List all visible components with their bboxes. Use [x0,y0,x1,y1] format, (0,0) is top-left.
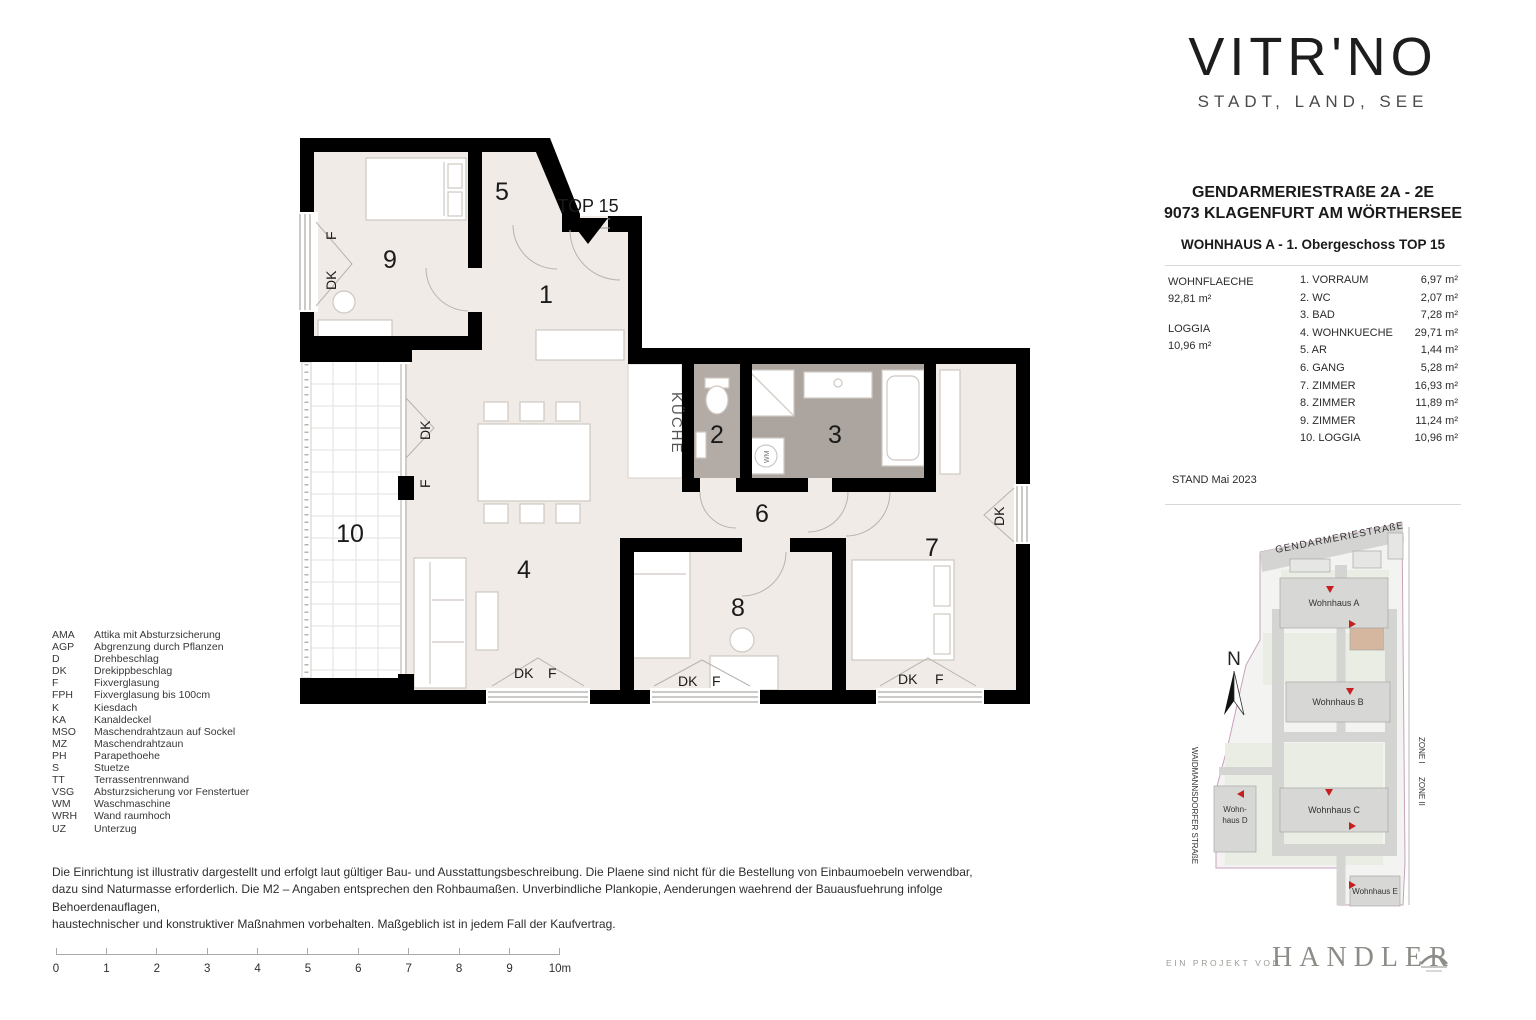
wohnhaus-c-label: Wohnhaus C [1308,805,1360,815]
legend-row: PH Parapethoehe [52,750,249,762]
room-area: 10,96 m² [1415,432,1458,444]
room-area: 2,07 m² [1421,292,1458,304]
room-name: 6. GANG [1300,362,1345,374]
legend-text: Unterzug [94,823,137,835]
legend-row: MZ Maschendrahtzaun [52,738,249,750]
legend-row: MSO Maschendrahtzaun auf Sockel [52,726,249,738]
legend-row: VSG Absturzsicherung vor Fenstertuer [52,786,249,798]
legend-abbr: VSG [52,786,94,798]
legend-abbr: WM [52,798,94,810]
scale-bar: 0 1 2 3 4 5 [50,944,570,984]
legend-abbr: S [52,762,94,774]
wohnhaus-b-label: Wohnhaus B [1312,697,1363,707]
zone1-label: ZONE I [1417,737,1426,764]
window-label-dk: DK [417,420,433,440]
window-label-f: F [417,479,433,488]
scale-tick-mark [509,948,510,955]
room-name: 5. AR [1300,344,1327,356]
room8-number: 8 [731,594,745,622]
disclaimer-line: Die Einrichtung ist illustrativ dargeste… [52,864,997,881]
room-row: 8. ZIMMER 11,89 m² [1300,397,1458,415]
street-left-label: WAIDMANNSDORFER STRAßE [1190,747,1199,864]
legend-row: D Drehbeschlag [52,653,249,665]
room-area: 29,71 m² [1415,327,1458,339]
scale-tick-label: 0 [53,963,59,975]
legend-row: F Fixverglasung [52,677,249,689]
legend-abbr: D [52,653,94,665]
legend-abbr: PH [52,750,94,762]
scale-tick-mark [207,948,208,955]
window-label-f: F [935,671,944,687]
legend-row: K Kiesdach [52,702,249,714]
room-area: 7,28 m² [1421,309,1458,321]
scale-tick-label: 10m [549,963,571,975]
legend-row: S Stuetze [52,762,249,774]
room-name: 1. VORRAUM [1300,274,1368,286]
legend-abbr: KA [52,714,94,726]
scale-tick-label: 7 [406,963,412,975]
room-row: 10. LOGGIA 10,96 m² [1300,432,1458,450]
legend-text: Drehbeschlag [94,653,159,665]
legend-text: Fixverglasung bis 100cm [94,689,210,701]
wardrobe-room7 [940,370,960,474]
room1-number: 1 [539,281,553,309]
legend-abbr: DK [52,665,94,677]
room-name: 4. WOHNKUECHE [1300,327,1393,339]
legend-text: Kiesdach [94,702,137,714]
handler-arch-icon [1418,946,1450,976]
room-area: 16,93 m² [1415,380,1458,392]
brand-logo: VITR'NO [1160,26,1466,88]
north-label: N [1227,649,1241,670]
legend-row: AGP Abgrenzung durch Pflanzen [52,641,249,653]
room-name: 3. BAD [1300,309,1335,321]
bed-room7 [852,560,954,660]
disclaimer: Die Einrichtung ist illustrativ dargeste… [52,864,997,933]
legend-row: TT Terrassentrennwand [52,774,249,786]
divider [1165,504,1461,505]
room-row: 4. WOHNKUECHE 29,71 m² [1300,327,1458,345]
loggia-label: LOGGIA [1168,323,1288,335]
scale-tick-mark [156,948,157,955]
scale-tick-label: 1 [103,963,109,975]
scale-tick-label: 5 [305,963,311,975]
room7-number: 7 [925,534,939,562]
scale-tick-label: 9 [506,963,512,975]
floor-plan: TOP 15 9 5 1 2 3 4 6 7 8 10 KÜCHE F DK D… [290,120,1050,720]
legend-abbr: UZ [52,823,94,835]
wohnhaus-d-label1: Wohn- [1223,805,1247,814]
legend-abbr: AMA [52,629,94,641]
wardrobe-room1 [536,330,624,360]
divider [1165,265,1461,266]
legend-text: Maschendrahtzaun auf Sockel [94,726,235,738]
legend-abbr: MSO [52,726,94,738]
legend-abbr: FPH [52,689,94,701]
legend-text: Maschendrahtzaun [94,738,183,750]
north-arrow: N [1224,649,1244,715]
wohnhaus-e-label: Wohnhaus E [1352,887,1398,896]
legend-text: Kanaldeckel [94,714,151,726]
window-label-f: F [323,231,339,240]
room-row: 6. GANG 5,28 m² [1300,362,1458,380]
scale-tick-mark [56,948,57,955]
right-panel: VITR'NO STADT, LAND, SEE GENDARMERIESTRA… [1160,0,1466,1020]
room-area: 11,24 m² [1415,415,1458,427]
scale-tick-mark [257,948,258,955]
legend-text: Attika mit Absturzsicherung [94,629,221,641]
legend-text: Fixverglasung [94,677,159,689]
room-name: 9. ZIMMER [1300,415,1356,427]
wm-label: WM [764,450,771,463]
legend-row: WRH Wand raumhoch [52,810,249,822]
scale-tick-mark [459,948,460,955]
legend-abbr: TT [52,774,94,786]
room-area: 6,97 m² [1421,274,1458,286]
room9-number: 9 [383,246,397,274]
scale-tick-mark [106,948,107,955]
scale-tick-label: 6 [355,963,361,975]
loggia-value: 10,96 m² [1168,340,1288,352]
zone2-label: ZONE II [1417,777,1426,806]
wohnhaus-d-label2: haus D [1222,816,1248,825]
footer: EIN PROJEKT VON HANDLER [1160,940,1466,990]
room-area: 11,89 m² [1415,397,1458,409]
top15-label: TOP 15 [557,196,618,216]
legend-row: WM Waschmaschine [52,798,249,810]
address-line2: 9073 KLAGENFURT AM WÖRTHERSEE [1160,203,1466,224]
room-name: 8. ZIMMER [1300,397,1356,409]
window-label-dk: DK [898,671,918,687]
room-area: 5,28 m² [1421,362,1458,374]
room10-number: 10 [336,520,364,548]
legend-row: FPH Fixverglasung bis 100cm [52,689,249,701]
window-label-dk: DK [678,673,698,689]
scale-tick-mark [358,948,359,955]
room5-number: 5 [495,178,509,206]
room4-number: 4 [517,556,531,584]
legend-text: Waschmaschine [94,798,171,810]
bed-room9 [366,158,466,220]
footer-prefix: EIN PROJEKT VON [1166,958,1281,968]
legend-row: DK Drekippbeschlag [52,665,249,677]
legend-text: Absturzsicherung vor Fenstertuer [94,786,249,798]
wohnflaeche-label: WOHNFLAECHE [1168,276,1288,288]
legend-abbr: WRH [52,810,94,822]
unit-highlight [1350,628,1384,650]
legend-text: Terrassentrennwand [94,774,189,786]
site-map: Wohnhaus A Wohnhaus B Wohnhaus C Wohn- h… [1163,515,1465,935]
room-row: 2. WC 2,07 m² [1300,292,1458,310]
plan-date: STAND Mai 2023 [1172,474,1257,486]
room-row: 1. VORRAUM 6,97 m² [1300,274,1458,292]
room-name: 10. LOGGIA [1300,432,1361,444]
project-address: GENDARMERIESTRAßE 2A - 2E 9073 KLAGENFUR… [1160,182,1466,224]
legend-row: UZ Unterzug [52,823,249,835]
legend-text: Parapethoehe [94,750,160,762]
room-area: 1,44 m² [1421,344,1458,356]
room-row: 7. ZIMMER 16,93 m² [1300,380,1458,398]
unit-subtitle: WOHNHAUS A - 1. Obergeschoss TOP 15 [1160,237,1466,252]
legend-text: Stuetze [94,762,130,774]
legend-abbr: AGP [52,641,94,653]
address-line1: GENDARMERIESTRAßE 2A - 2E [1160,182,1466,203]
dining-set-room4 [478,402,590,523]
room-row: 5. AR 1,44 m² [1300,344,1458,362]
scale-tick-label: 3 [204,963,210,975]
window-label-dk: DK [514,665,534,681]
legend-abbr: F [52,677,94,689]
area-summary: WOHNFLAECHE 92,81 m² LOGGIA 10,96 m² [1168,276,1288,352]
legend-text: Wand raumhoch [94,810,171,822]
room-row: 3. BAD 7,28 m² [1300,309,1458,327]
window-label-f: F [548,665,557,681]
scale-tick-label: 8 [456,963,462,975]
room-name: 2. WC [1300,292,1331,304]
legend-abbr: MZ [52,738,94,750]
kueche-label: KÜCHE [668,392,686,455]
wohnhaus-a-label: Wohnhaus A [1309,598,1360,608]
disclaimer-line: haustechnischer und konstruktiver Maßnah… [52,916,997,933]
legend-abbr: K [52,702,94,714]
legend-text: Abgrenzung durch Pflanzen [94,641,224,653]
room6-number: 6 [755,500,769,528]
wohnflaeche-value: 92,81 m² [1168,293,1288,305]
disclaimer-line: dazu sind Naturmasse erforderlich. Die M… [52,881,997,916]
abbreviation-legend: AMA Attika mit Absturzsicherung AGP Abgr… [52,629,249,835]
legend-text: Drekippbeschlag [94,665,172,677]
scale-tick-label: 2 [154,963,160,975]
window-label-dk: DK [991,506,1007,526]
scale-tick-mark [408,948,409,955]
room2-number: 2 [710,421,724,449]
room-row: 9. ZIMMER 11,24 m² [1300,415,1458,433]
scale-tick-label: 4 [254,963,260,975]
window-label-f: F [712,673,721,689]
legend-row: KA Kanaldeckel [52,714,249,726]
scale-tick-mark [307,948,308,955]
room3-number: 3 [828,421,842,449]
scale-ticks: 0 1 2 3 4 5 [56,948,560,975]
room-table: 1. VORRAUM 6,97 m² 2. WC 2,07 m² 3. BAD … [1300,274,1458,450]
window-label-dk: DK [323,270,339,290]
legend-row: AMA Attika mit Absturzsicherung [52,629,249,641]
brand-tagline: STADT, LAND, SEE [1160,92,1466,112]
scale-tick-mark [559,948,560,955]
room-name: 7. ZIMMER [1300,380,1356,392]
